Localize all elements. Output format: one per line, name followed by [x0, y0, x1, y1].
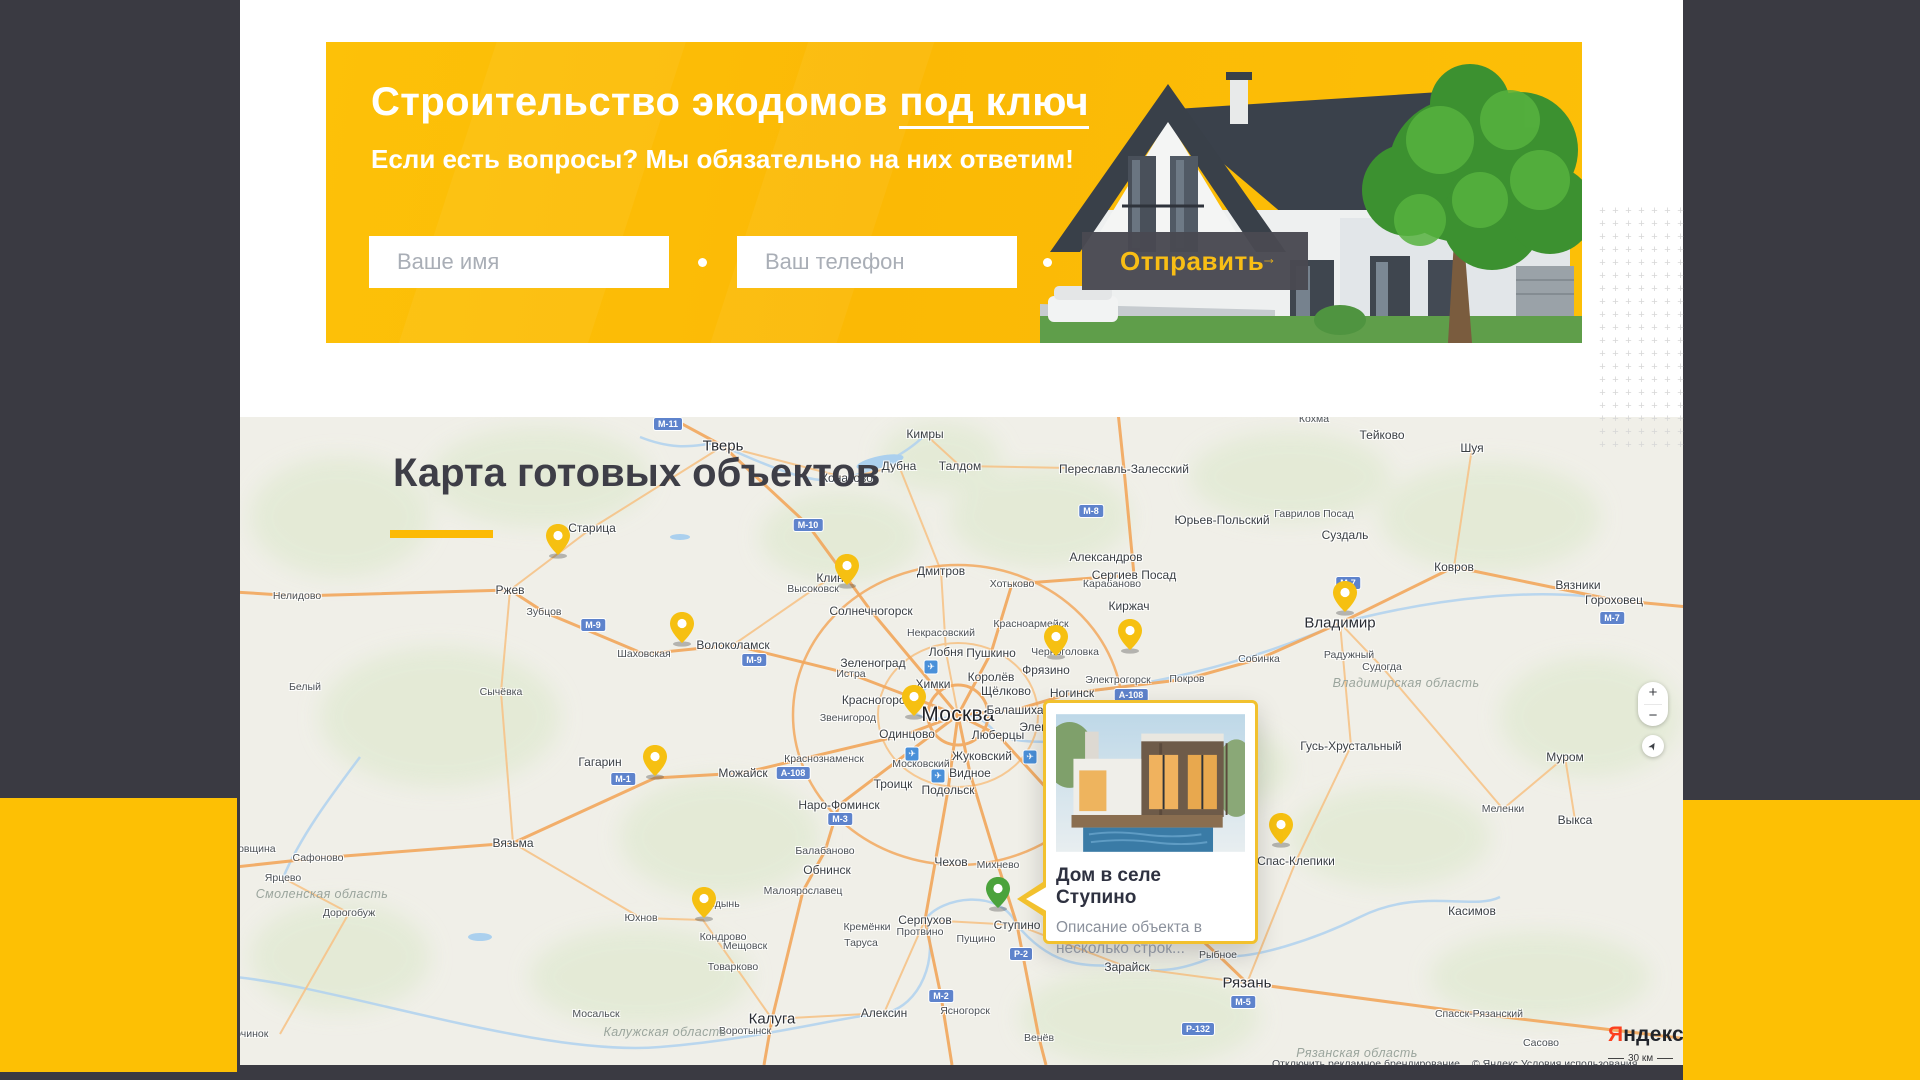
popup-description: Описание объекта в несколько строк...: [1056, 918, 1245, 960]
map-pin-yellow[interactable]: [834, 553, 860, 589]
airport-icon: ✈: [932, 770, 945, 783]
arrow-right-icon: [1264, 253, 1274, 269]
road-number-badge: М-10: [794, 519, 823, 531]
map-city-label: Муром: [1546, 750, 1584, 764]
map-city-label: Починок: [240, 1028, 268, 1040]
map-attribution-branding[interactable]: Отключить рекламное брендирование: [1272, 1058, 1460, 1065]
lead-banner: Строительство экодомов под ключ Если ест…: [326, 42, 1582, 343]
geolocate-icon: ➤: [1646, 740, 1660, 753]
map-city-label: Нелидово: [273, 590, 321, 602]
map-city-label: Пушкино: [966, 646, 1016, 660]
banner-title-underlined: под ключ: [899, 80, 1089, 129]
map-attribution-terms[interactable]: © Яндекс Условия использования: [1472, 1058, 1637, 1065]
house-photo: [1040, 60, 1582, 343]
map-city-label: Истра: [836, 668, 865, 680]
road-number-badge: Р-132: [1182, 1023, 1214, 1035]
map-city-label: Судогда: [1362, 661, 1402, 673]
popup-title: Дом в селе Ступино: [1056, 865, 1245, 909]
map-city-label: Белый: [289, 681, 321, 693]
map-city-label: Рязань: [1223, 975, 1272, 992]
banner-title: Строительство экодомов под ключ: [371, 80, 1089, 125]
road-number-badge: М-5: [1231, 996, 1255, 1008]
map-zoom-control: + −: [1638, 682, 1668, 726]
map-city-label: Жуковский: [952, 749, 1012, 763]
map-city-label: Кимры: [906, 427, 943, 441]
map-city-label: Александров: [1069, 550, 1142, 564]
map-city-label: Владимир: [1304, 615, 1375, 632]
road-number-badge: М-9: [581, 619, 605, 631]
submit-label: Отправить: [1120, 246, 1264, 277]
road-number-badge: М-2: [929, 990, 953, 1002]
map-city-label: Московский: [892, 758, 950, 770]
map-canvas[interactable]: МоскваТверьВладимирРязаньКалугаКимрыДубн…: [240, 417, 1683, 1065]
map-city-label: Дмитров: [917, 564, 965, 578]
map-city-label: Воротынск: [719, 1025, 771, 1037]
map-city-label: Гороховец: [1585, 593, 1643, 607]
map-city-label: Мосальск: [572, 1008, 619, 1020]
map-city-label: Таруса: [844, 937, 878, 949]
map-city-label: Венёв: [1024, 1032, 1054, 1044]
map-city-label: Королёв: [968, 670, 1015, 684]
map-city-label: Талдом: [939, 459, 981, 473]
map-pin-green-selected[interactable]: [985, 876, 1011, 912]
map-city-label: Вязьма: [492, 836, 533, 850]
geolocate-button[interactable]: ➤: [1642, 735, 1664, 757]
map-city-label: Кондрово: [700, 931, 747, 943]
map-city-label: Касимов: [1448, 904, 1496, 918]
map-city-label: Шаховская: [617, 648, 671, 660]
road-number-badge: М-1: [611, 773, 635, 785]
map-city-label: Дубна: [882, 459, 917, 473]
map-pin-yellow[interactable]: [1332, 580, 1358, 616]
yandex-logo[interactable]: Яндекс: [1608, 1023, 1683, 1047]
map-section-title: Карта готовых объектов: [393, 451, 880, 496]
map-city-label: Ковров: [1434, 560, 1474, 574]
map-city-label: Покров: [1169, 673, 1204, 685]
map-city-label: Ясногорск: [940, 1005, 990, 1017]
map-city-label: Красногорск: [842, 693, 910, 707]
map-region-label: Владимирская область: [1333, 676, 1480, 690]
map-city-label: Люберцы: [972, 728, 1024, 742]
map-city-label: Юрьев-Польский: [1174, 513, 1269, 527]
road-number-badge: М-3: [828, 813, 852, 825]
map-city-label: Некрасовский: [907, 627, 975, 639]
map-city-label: Лобня: [929, 645, 964, 659]
airport-icon: ✈: [925, 661, 938, 674]
map-city-label: Одинцово: [879, 727, 935, 741]
map-city-label: Сычёвка: [480, 686, 523, 698]
map-pin-yellow[interactable]: [642, 744, 668, 780]
map-city-label: Наро-Фоминск: [798, 798, 879, 812]
plus-dot-pattern: ++++++++++++++++++++++++++++++++++++++++…: [1596, 205, 1683, 455]
road-number-badge: М-7: [1600, 612, 1624, 624]
map-city-label: Кохма: [1299, 417, 1329, 425]
map-city-label: Чехов: [934, 855, 967, 869]
submit-button[interactable]: Отправить: [1082, 232, 1308, 290]
map-pin-yellow[interactable]: [1117, 618, 1143, 654]
map-city-label: Юхнов: [624, 912, 657, 924]
map-title-accent-bar: [390, 530, 493, 538]
map-city-label: Щёлково: [981, 684, 1031, 698]
map-city-label: Пущино: [957, 933, 996, 945]
map-city-label: Сафоново: [293, 852, 344, 864]
zoom-out-button[interactable]: −: [1638, 705, 1668, 727]
map-city-label: Можайск: [718, 766, 767, 780]
map-city-label: Солнечногорск: [829, 604, 912, 618]
map-city-label: Сасово: [1523, 1037, 1559, 1049]
map-city-label: Малоярославец: [764, 885, 843, 897]
map-city-label: Вязники: [1555, 578, 1600, 592]
map-pin-yellow[interactable]: [1268, 812, 1294, 848]
road-number-badge: М-9: [742, 654, 766, 666]
map-city-label: Михнево: [977, 859, 1020, 871]
separator-dot: [1043, 258, 1052, 267]
map-city-label: Гагарин: [578, 755, 621, 769]
map-city-label: Гусь-Хрустальный: [1300, 739, 1401, 753]
popup-house-photo: [1056, 713, 1245, 853]
map-region-label: Калужская область: [603, 1025, 726, 1039]
map-city-label: Кремёнки: [843, 921, 890, 933]
map-city-label: Балабаново: [795, 845, 854, 857]
airport-icon: ✈: [1024, 751, 1037, 764]
banner-subtitle: Если есть вопросы? Мы обязательно на них…: [371, 144, 1074, 175]
map-city-label: Фрязино: [1022, 663, 1070, 677]
map-city-label: Выкса: [1558, 813, 1593, 827]
map-city-label: Собинка: [1238, 653, 1280, 665]
map-city-label: Спасск-Рязанский: [1435, 1008, 1523, 1020]
name-input[interactable]: [369, 236, 669, 288]
map-city-label: Подольск: [922, 783, 975, 797]
map-city-label: Старица: [568, 521, 616, 535]
map-city-label: Киржач: [1108, 599, 1149, 613]
road-number-badge: М-11: [654, 418, 682, 430]
phone-input[interactable]: [737, 236, 1017, 288]
map-city-label: Тейково: [1359, 428, 1404, 442]
map-pin-yellow[interactable]: [691, 886, 717, 922]
map-city-label: Радужный: [1324, 649, 1374, 661]
map-city-label: Балашиха: [986, 703, 1043, 717]
map-city-label: Гаврилов Посад: [1274, 508, 1353, 520]
map-city-label: Спас-Клепики: [1257, 854, 1335, 868]
separator-dot: [698, 258, 707, 267]
map-city-label: Видное: [949, 766, 991, 780]
map-city-label: Товарково: [708, 961, 758, 973]
map-pin-yellow[interactable]: [901, 684, 927, 720]
map-city-label: Меленки: [1482, 803, 1525, 815]
map-city-label: Зарайск: [1104, 960, 1149, 974]
map-city-label: Зубцов: [526, 606, 561, 618]
map-city-label: Электрогорск: [1085, 674, 1151, 686]
map-popup-balloon[interactable]: Дом в селе Ступино Описание объекта в не…: [1043, 700, 1258, 944]
map-city-label: Алексин: [861, 1006, 907, 1020]
map-city-label: Ярцево: [265, 872, 301, 884]
map-city-label: Краснознаменск: [784, 753, 864, 765]
map-city-label: Суздаль: [1322, 528, 1369, 542]
map-pin-yellow[interactable]: [669, 611, 695, 647]
page-content: Строительство экодомов под ключ Если ест…: [240, 0, 1683, 1065]
zoom-in-button[interactable]: +: [1638, 682, 1668, 704]
road-number-badge: М-8: [1079, 505, 1103, 517]
map-city-label: Хотьково: [990, 578, 1035, 590]
road-number-badge: Р-2: [1010, 948, 1032, 960]
map-region-label: Смоленская область: [256, 887, 389, 901]
map-city-label: Сергиев Посад: [1092, 568, 1176, 582]
map-city-label: Волоколамск: [696, 638, 769, 652]
footer-band-left: [0, 798, 237, 1072]
airport-icon: ✈: [906, 748, 919, 761]
map-city-label: Духовщина: [240, 843, 276, 855]
map-city-label: Переславль-Залесский: [1059, 462, 1189, 476]
map-city-label: Ржев: [495, 583, 524, 597]
map-city-label: Звенигород: [820, 712, 876, 724]
map-pin-yellow[interactable]: [1043, 624, 1069, 660]
map-city-label: Протвино: [897, 926, 944, 938]
map-terrain: [240, 417, 1683, 1065]
map-pin-yellow[interactable]: [545, 523, 571, 559]
map-city-label: Москва: [921, 703, 995, 727]
map-city-label: Ногинск: [1050, 686, 1094, 700]
map-city-label: Серпухов: [898, 913, 951, 927]
map-city-label: Троицк: [874, 777, 913, 791]
map-city-label: Высоковск: [787, 583, 839, 595]
map-city-label: Обнинск: [803, 863, 850, 877]
map-city-label: Ступино: [994, 918, 1041, 932]
map-city-label: Дорогобуж: [323, 907, 375, 919]
road-number-badge: А-108: [777, 767, 810, 779]
map-city-label: Шуя: [1460, 441, 1483, 455]
footer-band-right: [1683, 800, 1920, 1080]
